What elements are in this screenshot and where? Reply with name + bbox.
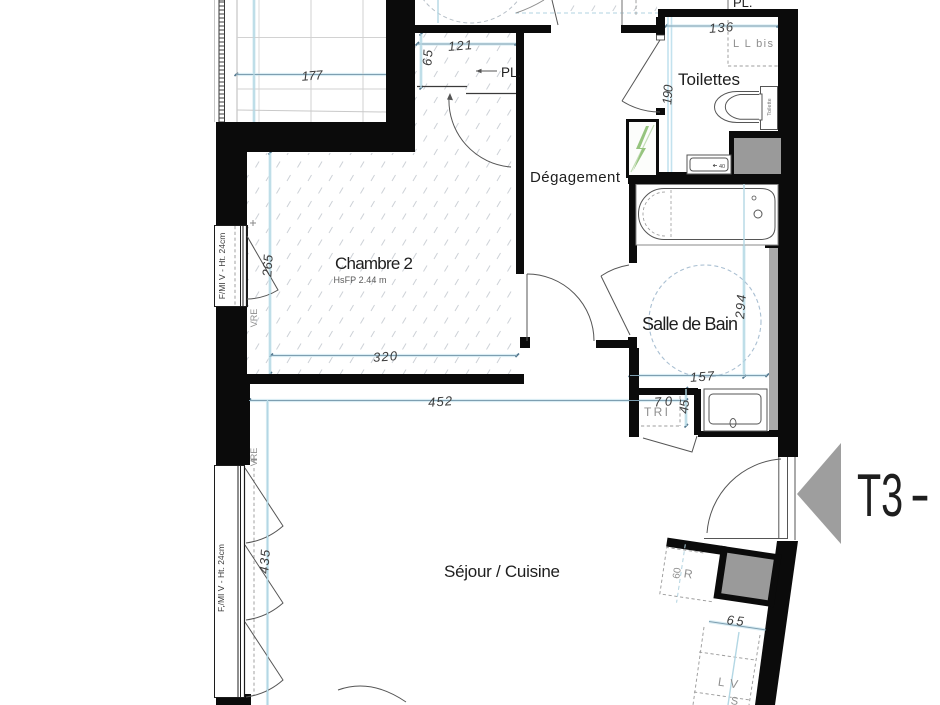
svg-text:TRI: TRI (644, 405, 668, 419)
svg-text:F/MI V - Ht. 24cm: F/MI V - Ht. 24cm (217, 233, 227, 300)
svg-text:177: 177 (301, 67, 324, 83)
svg-text:60: 60 (671, 566, 684, 579)
svg-text:190: 190 (659, 83, 675, 105)
svg-text:HsFP 2.44 m: HsFP 2.44 m (334, 275, 387, 285)
svg-text:PL.: PL. (733, 0, 753, 10)
svg-text:Salle de Bain: Salle de Bain (642, 314, 738, 334)
svg-text:Chambre 2: Chambre 2 (335, 254, 413, 273)
svg-text:435: 435 (256, 548, 273, 574)
svg-text:40: 40 (719, 164, 725, 170)
svg-text:S: S (730, 695, 739, 705)
svg-text:294: 294 (732, 294, 749, 320)
svg-text:320: 320 (373, 348, 399, 365)
svg-text:452: 452 (428, 393, 454, 410)
svg-text:121: 121 (448, 37, 473, 54)
svg-text:VRE: VRE (249, 309, 259, 328)
svg-text:Séjour / Cuisine: Séjour / Cuisine (444, 562, 560, 581)
svg-text:F,/MI V - Ht. 24cm: F,/MI V - Ht. 24cm (216, 544, 226, 612)
svg-text:45: 45 (676, 398, 692, 414)
svg-text:Dégagement: Dégagement (530, 169, 621, 186)
svg-text:-: - (910, 460, 930, 527)
svg-text:Toilette: Toilette (767, 98, 773, 115)
svg-text:T3: T3 (857, 462, 903, 529)
svg-text:VRE: VRE (249, 448, 259, 467)
svg-text:65: 65 (419, 49, 435, 67)
svg-text:PL.: PL. (501, 65, 521, 80)
svg-text:136: 136 (709, 19, 735, 36)
svg-text:265: 265 (259, 253, 276, 278)
svg-text:157: 157 (690, 368, 716, 385)
svg-text:Toilettes: Toilettes (678, 70, 740, 89)
